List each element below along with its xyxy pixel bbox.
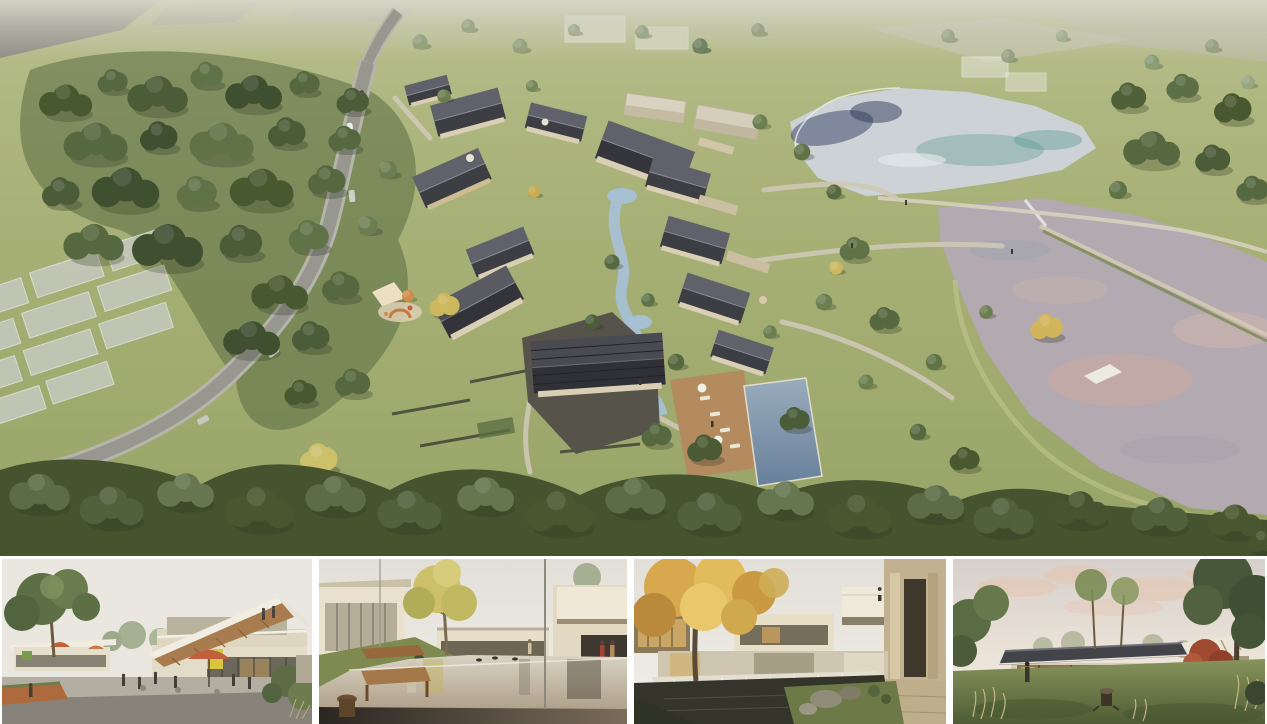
aerial-rendering-canvas — [0, 0, 1267, 556]
rendering-board — [0, 0, 1267, 724]
thumbnail-row — [0, 559, 1267, 724]
aerial-rendering — [0, 0, 1267, 556]
t4-person — [1025, 662, 1030, 682]
pool-house — [530, 332, 666, 397]
thumbnail-pavilion-view — [953, 559, 1265, 724]
thumbnail-plaza-view — [2, 559, 312, 724]
thumbnail-watercourt-view — [319, 559, 627, 724]
t2-stone-deck — [319, 707, 627, 724]
t3-moss-garden — [784, 681, 904, 724]
thumbnail-pond-view — [634, 559, 946, 724]
